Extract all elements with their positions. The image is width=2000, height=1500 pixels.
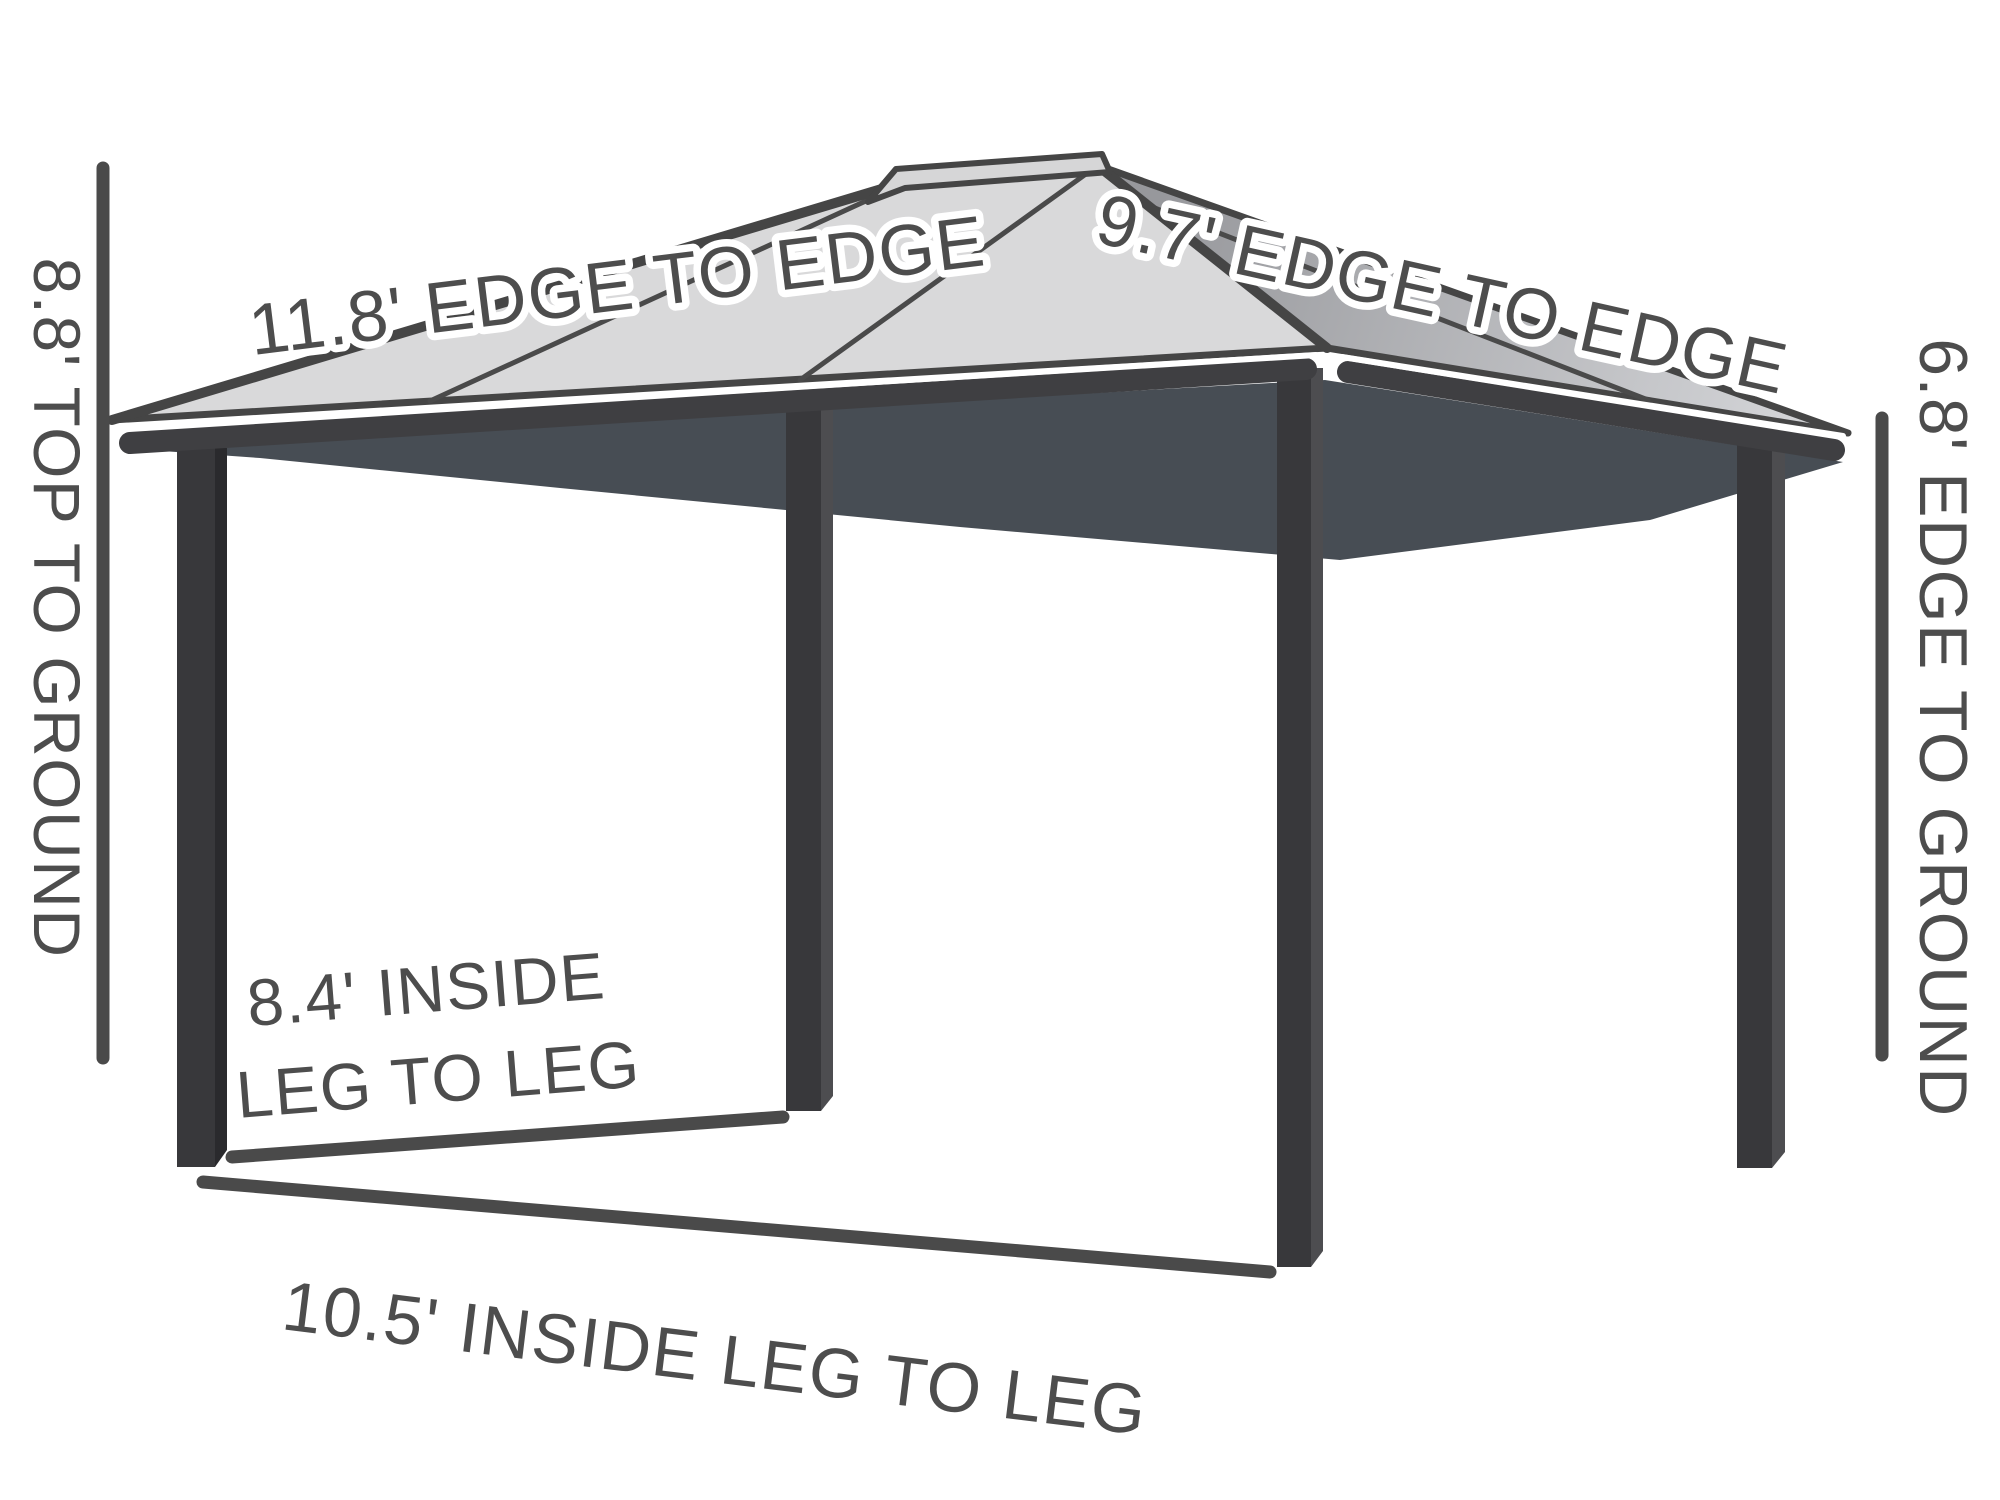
label-height-left: 8.8' TOP TO GROUND — [20, 257, 94, 958]
leg-front — [1277, 368, 1323, 1267]
leg-right-side-face — [1772, 438, 1785, 1168]
gazebo-dimension-diagram: 11.8' EDGE TO EDGE 9.7' EDGE TO EDGE 8.8… — [0, 0, 2000, 1500]
label-height-right: 6.8' EDGE TO GROUND — [1905, 338, 1981, 1118]
leg-left-side-face — [215, 448, 227, 1167]
leg-back — [786, 400, 833, 1111]
leg-right-front-face — [1737, 438, 1772, 1168]
leg-back-front-face — [786, 400, 821, 1111]
leg-right — [1737, 438, 1785, 1168]
leg-left-front-face — [177, 448, 215, 1167]
leg-front-side-face — [1311, 368, 1323, 1267]
leg-front-front-face — [1277, 368, 1311, 1267]
leg-left — [177, 448, 227, 1167]
leg-back-side-face — [821, 400, 833, 1111]
